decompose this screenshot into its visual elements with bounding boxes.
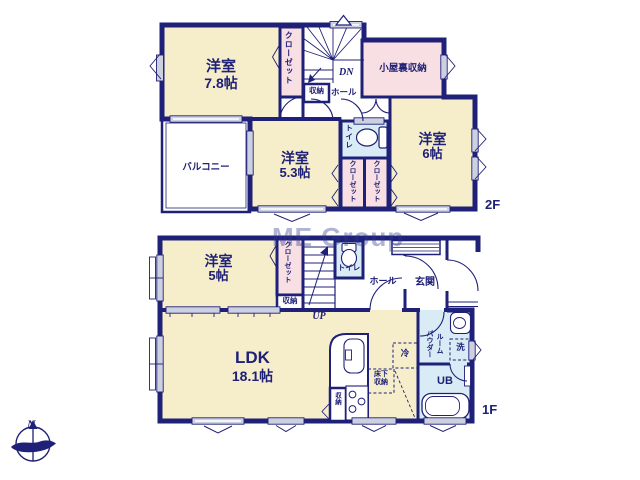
floorplan-page: 洋室 7.8帖 クローゼット 収納 ホール DN 小屋裏収納 バルコニー 洋室 … — [0, 0, 640, 480]
stairs-up-label: UP — [303, 311, 335, 323]
hall-1f-label: ホール — [363, 276, 403, 286]
ldk-label: LDK 18.1帖 — [175, 348, 330, 384]
powder-room-label-1: パウダー — [425, 330, 433, 358]
powder-room-label-2: ルーム — [435, 333, 443, 354]
underfloor-storage-label: 床下 収納 — [368, 371, 394, 387]
storage-2f-label: 収納 — [304, 87, 329, 96]
compass-north-label: N — [27, 418, 36, 432]
attic-storage-label: 小屋裏収納 — [362, 64, 444, 75]
toilet-2f-label: トイレ — [344, 124, 353, 150]
refrigerator-label: 冷 — [393, 349, 417, 359]
bedroom6-label: 洋室 6帖 — [390, 131, 475, 162]
sliding-door-bedroom5-ldk — [228, 307, 280, 313]
toilet-2f-icon — [357, 127, 388, 148]
washer-label: 洗 — [450, 343, 471, 353]
closet-b-label: クローゼット — [372, 160, 380, 202]
floor-2f-drawing — [150, 16, 486, 222]
unit-bath-label: UB — [418, 375, 472, 388]
roof-vent-marker — [336, 16, 351, 26]
bedroom5-label: 洋室 5帖 — [160, 253, 277, 284]
bedroom78-label: 洋室 7.8帖 — [162, 58, 280, 91]
kitchen-storage-label: 収納 — [333, 392, 340, 405]
closet-2f-label: クローゼット — [284, 31, 293, 85]
window-toilet-2f — [354, 118, 384, 124]
stairs-dn-label: DN — [339, 67, 353, 79]
window-kitchen-bottom — [352, 418, 396, 424]
window-bedroom5-bottom — [166, 307, 220, 313]
bedroom53-label: 洋室 5.3帖 — [250, 150, 340, 181]
floor-2f-label: 2F — [485, 198, 500, 213]
balcony-label: バルコニー — [162, 163, 250, 174]
window-ldk-bottom-2 — [268, 418, 304, 424]
toilet-1f-label: トイレ — [335, 264, 363, 273]
closet-a-label: クローゼット — [348, 160, 356, 202]
entrance-label: 玄関 — [405, 277, 445, 289]
washbasin-icon — [451, 313, 471, 334]
storage-1f-label: 収納 — [277, 297, 303, 306]
floor-1f-label: 1F — [482, 403, 497, 418]
hall-2f-label: ホール — [331, 88, 357, 98]
window-bath-bottom — [424, 418, 466, 424]
watermark: ME Group — [272, 222, 404, 253]
